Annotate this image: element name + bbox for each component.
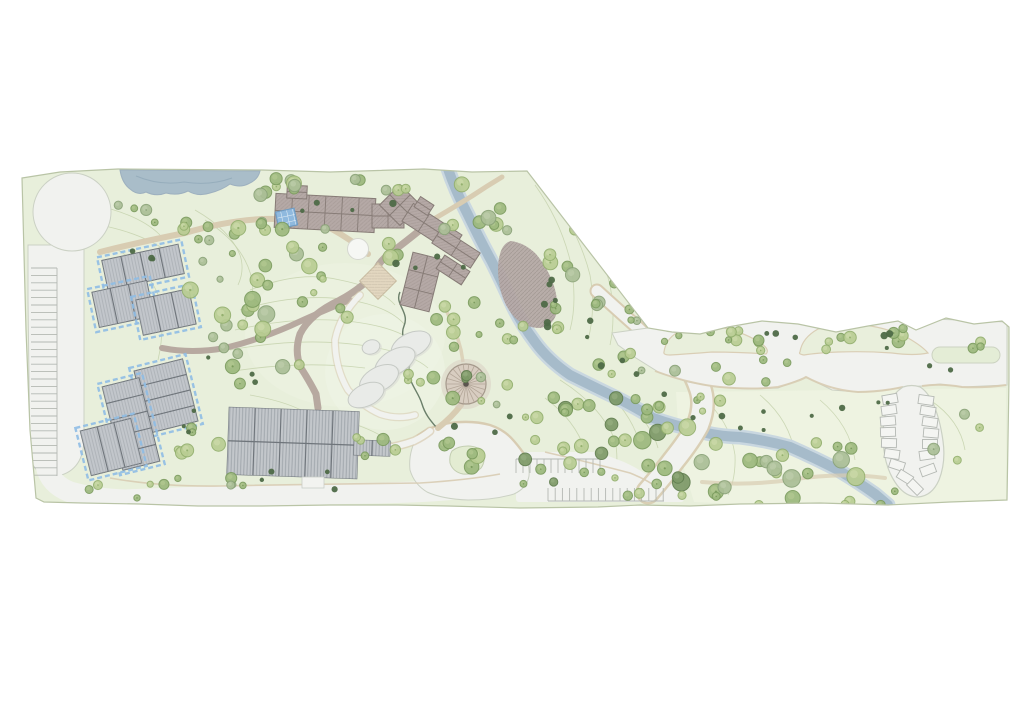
site-area [22, 166, 1009, 521]
barn-shed [302, 477, 324, 488]
cul-de-sac [33, 173, 111, 251]
site-plan-canvas [0, 0, 1024, 723]
event-canopy [348, 239, 369, 260]
site-plan-page [0, 0, 1024, 723]
barn [227, 407, 359, 478]
scene-root [22, 166, 1009, 521]
parking-strip-west [28, 245, 84, 476]
road-median [932, 347, 1000, 363]
